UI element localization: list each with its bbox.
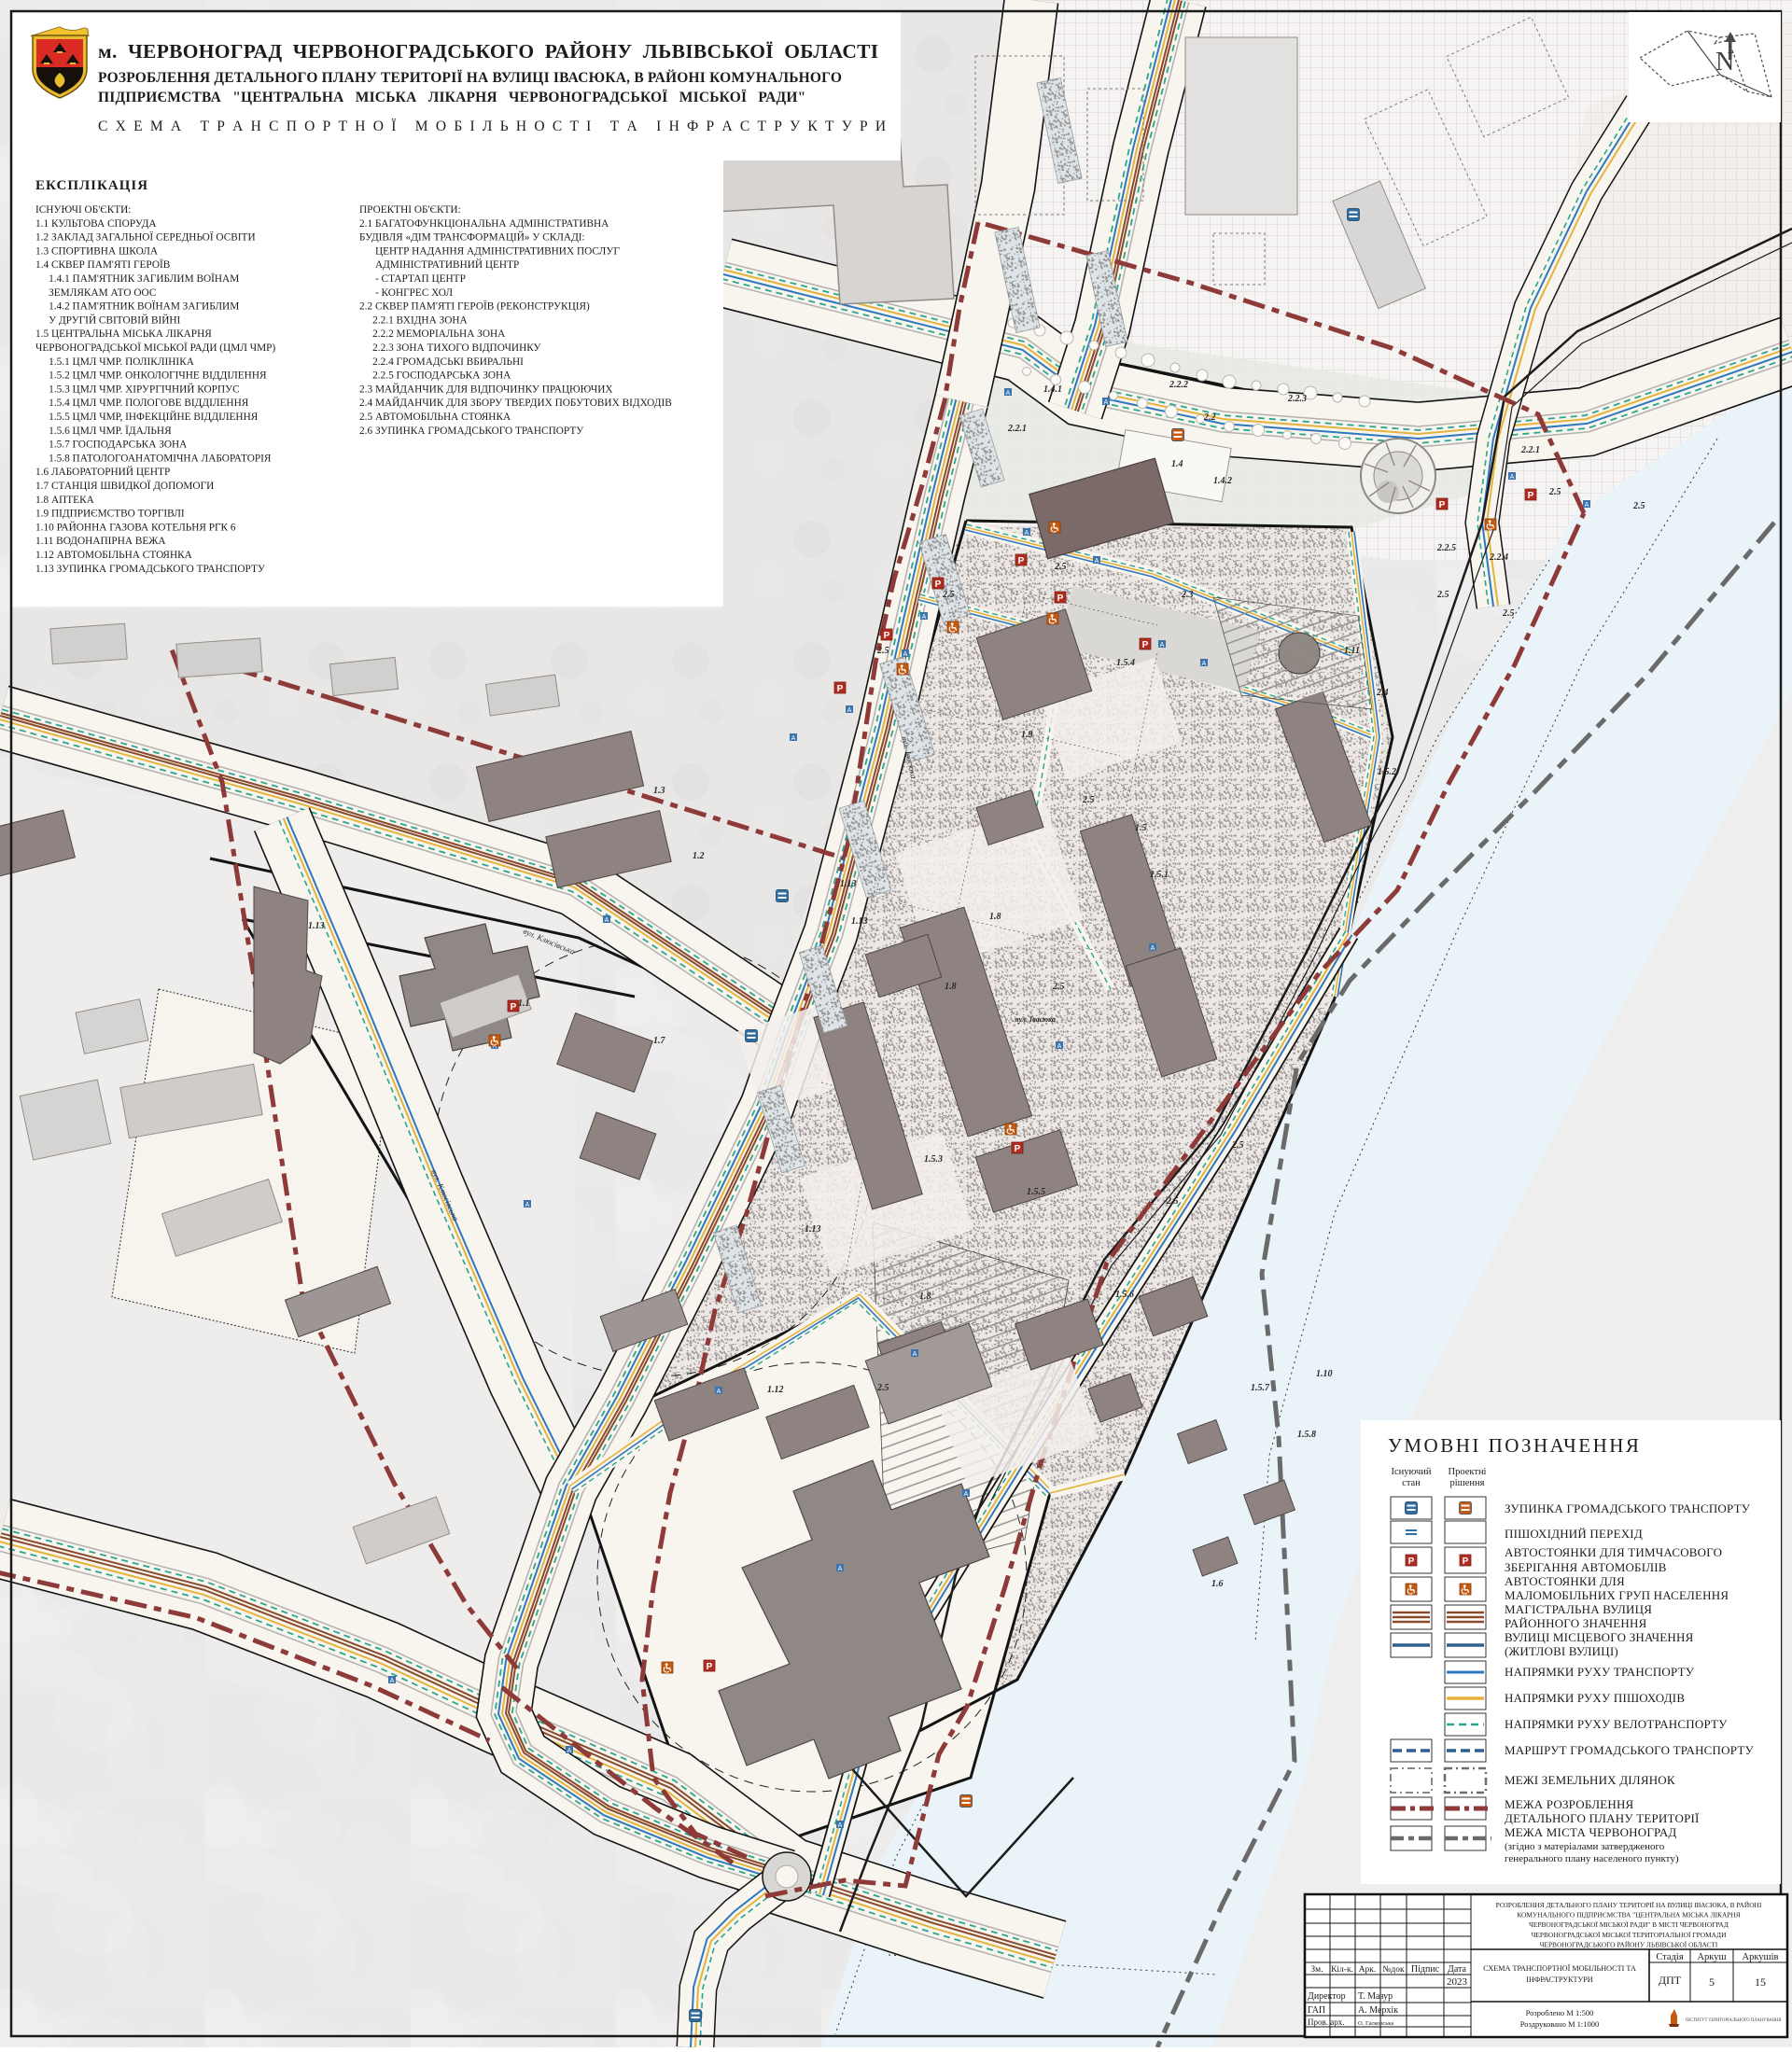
svg-text:P: P: [1528, 491, 1534, 501]
svg-text:P: P: [1408, 1556, 1415, 1567]
svg-text:2.2.4: 2.2.4: [1489, 552, 1508, 563]
svg-text:РОЗРОБЛЕННЯ ДЕТАЛЬНОГО ПЛАНУ Т: РОЗРОБЛЕННЯ ДЕТАЛЬНОГО ПЛАНУ ТЕРИТОРІЇ Н…: [98, 70, 842, 86]
svg-text:МАРШРУТ ГРОМАДСЬКОГО ТРАНСПОРТ: МАРШРУТ ГРОМАДСЬКОГО ТРАНСПОРТУ: [1505, 1743, 1754, 1757]
svg-text:P: P: [1463, 1556, 1469, 1567]
svg-text:1.5.7: 1.5.7: [1251, 1383, 1270, 1393]
svg-text:15: 15: [1755, 1975, 1766, 1989]
svg-text:P: P: [707, 1662, 713, 1672]
svg-text:1.13: 1.13: [840, 879, 857, 889]
svg-text:НАПРЯМКИ РУХУ ТРАНСПОРТУ: НАПРЯМКИ РУХУ ТРАНСПОРТУ: [1505, 1665, 1695, 1679]
svg-text:2.2.5: 2.2.5: [1436, 543, 1456, 553]
svg-text:1.10 РАЙОННА ГАЗОВА КОТЕЛЬНЯ Р: 1.10 РАЙОННА ГАЗОВА КОТЕЛЬНЯ РГК 6: [35, 522, 236, 533]
svg-text:ЦЕНТР НАДАННЯ АДМІНІСТРАТИВНИХ: ЦЕНТР НАДАННЯ АДМІНІСТРАТИВНИХ ПОСЛУГ: [359, 245, 620, 257]
svg-text:A: A: [791, 735, 796, 742]
svg-text:2.5: 2.5: [942, 590, 955, 600]
svg-text:1.5: 1.5: [1135, 823, 1147, 833]
svg-text:Підпис: Підпис: [1411, 1964, 1440, 1975]
svg-text:- КОНГРЕС ХОЛ: - КОНГРЕС ХОЛ: [359, 287, 453, 299]
svg-text:БУДІВЛЯ «ДІМ ТРАНСФОРМАЦІЙ» У: БУДІВЛЯ «ДІМ ТРАНСФОРМАЦІЙ» У СКЛАДІ:: [359, 232, 585, 244]
svg-text:2.2.1 ВХІДНА ЗОНА: 2.2.1 ВХІДНА ЗОНА: [359, 314, 469, 326]
svg-text:1.3 СПОРТИВНА ШКОЛА: 1.3 СПОРТИВНА ШКОЛА: [35, 245, 159, 257]
svg-text:1.8: 1.8: [945, 982, 957, 992]
svg-text:1.11 ВОДОНАПІРНА ВЕЖА: 1.11 ВОДОНАПІРНА ВЕЖА: [35, 536, 166, 547]
svg-text:2.6 ЗУПИНКА ГРОМАДСЬКОГО ТРАНС: 2.6 ЗУПИНКА ГРОМАДСЬКОГО ТРАНСПОРТУ: [359, 426, 583, 437]
svg-text:P: P: [511, 1002, 517, 1012]
svg-text:1.5.6: 1.5.6: [1115, 1290, 1134, 1300]
svg-text:A: A: [390, 1678, 395, 1684]
svg-text:1.10: 1.10: [1316, 1369, 1333, 1379]
svg-text:5: 5: [1709, 1975, 1715, 1989]
svg-text:НАПРЯМКИ РУХУ ВЕЛОТРАНСПОРТУ: НАПРЯМКИ РУХУ ВЕЛОТРАНСПОРТУ: [1505, 1717, 1728, 1731]
svg-text:1.5.8: 1.5.8: [1297, 1430, 1316, 1440]
svg-text:МЕЖА РОЗРОБЛЕННЯ: МЕЖА РОЗРОБЛЕННЯ: [1505, 1797, 1634, 1811]
svg-text:1.8 АПТЕКА: 1.8 АПТЕКА: [35, 495, 95, 506]
svg-text:ГАП: ГАП: [1308, 2005, 1325, 2016]
svg-text:МЕЖА МІСТА ЧЕРВОНОГРАД: МЕЖА МІСТА ЧЕРВОНОГРАД: [1505, 1825, 1676, 1839]
svg-text:УМОВНІ ПОЗНАЧЕННЯ: УМОВНІ ПОЗНАЧЕННЯ: [1388, 1434, 1641, 1457]
svg-text:1.5.3 ЦМЛ ЧМР. ХІРУРГІЧНИЙ КОР: 1.5.3 ЦМЛ ЧМР. ХІРУРГІЧНИЙ КОРПУС: [35, 384, 240, 395]
svg-text:2.2.1: 2.2.1: [1007, 424, 1027, 434]
svg-text:м. ЧЕРВОНОГРАД ЧЕРВОНОГРАДСЬ: м. ЧЕРВОНОГРАД ЧЕРВОНОГРАДСЬКОГО РАЙОНУ …: [98, 40, 878, 63]
svg-text:A: A: [1585, 502, 1589, 509]
svg-text:2.5: 2.5: [1082, 795, 1095, 805]
svg-text:1.7 СТАНЦІЯ ШВИДКОЇ ДОПОМОГИ: 1.7 СТАНЦІЯ ШВИДКОЇ ДОПОМОГИ: [35, 481, 214, 492]
svg-text:СХЕМА ТРАНСПОРТНОЇ МОБІЛЬНОСТІ: СХЕМА ТРАНСПОРТНОЇ МОБІЛЬНОСТІ ТА: [1483, 1964, 1636, 1973]
svg-text:Роздруковано М 1:1000: Роздруковано М 1:1000: [1520, 2019, 1600, 2029]
svg-text:1.6 ЛАБОРАТОРНИЙ ЦЕНТР: 1.6 ЛАБОРАТОРНИЙ ЦЕНТР: [35, 467, 170, 478]
svg-text:2.2.3 ЗОНА ТИХОГО ВІДПОЧИНКУ: 2.2.3 ЗОНА ТИХОГО ВІДПОЧИНКУ: [359, 342, 541, 354]
svg-text:1.5.5 ЦМЛ ЧМР, ІНФЕКЦІЙНЕ ВІДД: 1.5.5 ЦМЛ ЧМР, ІНФЕКЦІЙНЕ ВІДДІЛЕННЯ: [35, 412, 259, 423]
svg-text:A: A: [838, 1822, 843, 1829]
svg-text:Т. Мазур: Т. Мазур: [1358, 1991, 1393, 2002]
svg-text:ЧЕРВОНОГРАДСЬКОЇ МІСЬКОЇ РАДИ": ЧЕРВОНОГРАДСЬКОЇ МІСЬКОЇ РАДИ" В МІСТІ Ч…: [1529, 1920, 1729, 1929]
svg-text:КОМУНАЛЬНОГО ПІДПРИЄМСТВА "ЦЕН: КОМУНАЛЬНОГО ПІДПРИЄМСТВА "ЦЕНТРАЛЬНА МІ…: [1517, 1911, 1740, 1919]
svg-text:1.5.4: 1.5.4: [1116, 658, 1135, 668]
svg-text:- СТАРТАП ЦЕНТР: - СТАРТАП ЦЕНТР: [359, 273, 466, 285]
svg-text:2.2: 2.2: [1203, 412, 1216, 423]
svg-text:N: N: [1715, 48, 1734, 77]
svg-text:1.13: 1.13: [851, 916, 868, 927]
svg-text:ЗУПИНКА ГРОМАДСЬКОГО ТРАНСПОРТ: ЗУПИНКА ГРОМАДСЬКОГО ТРАНСПОРТУ: [1505, 1501, 1751, 1515]
svg-text:ПІДПРИЄМСТВА "ЦЕНТРАЛЬНА М: ПІДПРИЄМСТВА "ЦЕНТРАЛЬНА МІСЬКА ЛІКАРНЯ …: [98, 90, 805, 105]
svg-text:P: P: [935, 579, 942, 590]
svg-text:С Х Е М А Т Р А Н С П О Р Т: С Х Е М А Т Р А Н С П О Р Т Н О Ї М О Б …: [98, 119, 888, 134]
svg-text:1.4.2: 1.4.2: [1213, 476, 1232, 486]
svg-text:2.2.2 МЕМОРІАЛЬНА ЗОНА: 2.2.2 МЕМОРІАЛЬНА ЗОНА: [359, 328, 506, 340]
svg-text:1.1: 1.1: [518, 998, 530, 1009]
svg-text:(згідно з матеріалами затвердж: (згідно з матеріалами затвердженого: [1505, 1841, 1665, 1852]
svg-text:P: P: [1015, 1144, 1021, 1154]
svg-text:1.13: 1.13: [805, 1224, 821, 1235]
svg-text:A: A: [1510, 474, 1515, 481]
svg-text:A: A: [1104, 399, 1109, 406]
svg-text:Пров. арх.: Пров. арх.: [1308, 2017, 1345, 2027]
svg-text:МЕЖІ ЗЕМЕЛЬНИХ ДІЛЯНОК: МЕЖІ ЗЕМЕЛЬНИХ ДІЛЯНОК: [1505, 1773, 1675, 1787]
svg-text:A: A: [922, 614, 927, 621]
svg-text:1.12 АВТОМОБІЛЬНА СТОЯНКА: 1.12 АВТОМОБІЛЬНА СТОЯНКА: [35, 550, 193, 561]
svg-text:1.6: 1.6: [1211, 1579, 1224, 1589]
svg-text:ЧЕРВОНОГРАДСЬКОГО РАЙОНУ ЛЬВІВ: ЧЕРВОНОГРАДСЬКОГО РАЙОНУ ЛЬВІВСЬКОЇ ОБЛА…: [1540, 1940, 1718, 1948]
svg-text:1.7: 1.7: [653, 1036, 666, 1046]
svg-text:2.3 МАЙДАНЧИК ДЛЯ ВІДПОЧИНКУ П: 2.3 МАЙДАНЧИК ДЛЯ ВІДПОЧИНКУ ПРАЦЮЮЧИХ: [359, 384, 613, 395]
svg-text:A: A: [1057, 1043, 1062, 1050]
svg-text:1.11: 1.11: [1344, 646, 1360, 656]
svg-text:2.4: 2.4: [1376, 688, 1389, 698]
svg-text:1.4.1: 1.4.1: [1043, 384, 1062, 395]
svg-text:ПРОЕКТНІ ОБ'ЄКТИ:: ПРОЕКТНІ ОБ'ЄКТИ:: [359, 204, 461, 216]
svg-text:1.1 КУЛЬТОВА СПОРУДА: 1.1 КУЛЬТОВА СПОРУДА: [35, 218, 157, 230]
svg-text:№док: №док: [1382, 1965, 1405, 1975]
svg-text:1.4 СКВЕР ПАМ'ЯТІ ГЕРОЇВ: 1.4 СКВЕР ПАМ'ЯТІ ГЕРОЇВ: [35, 259, 170, 271]
svg-text:A: A: [964, 1491, 969, 1498]
svg-text:1.5.3: 1.5.3: [924, 1154, 943, 1165]
svg-text:1.3: 1.3: [653, 786, 665, 796]
svg-text:ЗЕМЛЯКАМ АТО ООС: ЗЕМЛЯКАМ АТО ООС: [35, 287, 156, 299]
svg-text:2.5: 2.5: [1632, 501, 1645, 511]
svg-text:A: A: [1151, 945, 1155, 952]
svg-text:У ДРУГІЙ СВІТОВІЙ ВІЙНІ: У ДРУГІЙ СВІТОВІЙ ВІЙНІ: [35, 314, 181, 326]
svg-text:2.2.3: 2.2.3: [1287, 394, 1307, 404]
svg-text:ІСНУЮЧІ ОБ'ЄКТИ:: ІСНУЮЧІ ОБ'ЄКТИ:: [35, 204, 131, 216]
svg-text:рішення: рішення: [1450, 1478, 1485, 1488]
svg-text:A: A: [567, 1748, 572, 1754]
svg-text:ВУЛИЦІ МІСЦЕВОГО ЗНАЧЕННЯ: ВУЛИЦІ МІСЦЕВОГО ЗНАЧЕННЯ: [1505, 1630, 1694, 1644]
svg-text:ЗБЕРІГАННЯ АВТОМОБІЛІВ: ЗБЕРІГАННЯ АВТОМОБІЛІВ: [1505, 1560, 1667, 1574]
svg-text:2.5: 2.5: [1548, 487, 1561, 497]
svg-text:1.5.7 ГОСПОДАРСЬКА ЗОНА: 1.5.7 ГОСПОДАРСЬКА ЗОНА: [35, 440, 188, 451]
svg-text:2.1 БАГАТОФУНКЦІОНАЛЬНА АДМІНІ: 2.1 БАГАТОФУНКЦІОНАЛЬНА АДМІНІСТРАТИВНА: [359, 218, 609, 230]
svg-text:2.5: 2.5: [1054, 562, 1067, 572]
svg-text:1.8: 1.8: [989, 912, 1001, 922]
svg-text:2.2.5 ГОСПОДАРСЬКА ЗОНА: 2.2.5 ГОСПОДАРСЬКА ЗОНА: [359, 370, 511, 382]
svg-text:2.5: 2.5: [876, 646, 889, 656]
svg-text:1.5.1: 1.5.1: [1150, 870, 1169, 880]
svg-text:Проектні: Проектні: [1449, 1467, 1487, 1477]
svg-text:1.4.1 ПАМ'ЯТНИК ЗАГИБЛИМ ВОЇНА: 1.4.1 ПАМ'ЯТНИК ЗАГИБЛИМ ВОЇНАМ: [35, 273, 239, 285]
svg-text:Розроблено М 1:500: Розроблено М 1:500: [1526, 2008, 1594, 2017]
svg-text:1.5.5: 1.5.5: [1027, 1187, 1045, 1197]
svg-text:2.5: 2.5: [1231, 1140, 1244, 1151]
svg-text:Існуючий: Існуючий: [1392, 1467, 1432, 1477]
svg-text:A: A: [1025, 530, 1029, 537]
svg-text:1.12: 1.12: [767, 1385, 784, 1395]
svg-text:A: A: [1202, 661, 1207, 667]
svg-text:ДПТ: ДПТ: [1659, 1974, 1682, 1987]
svg-text:Стадія: Стадія: [1656, 1952, 1684, 1962]
svg-text:1.4: 1.4: [1171, 459, 1183, 469]
svg-text:стан: стан: [1402, 1478, 1421, 1488]
svg-text:2.2.4 ГРОМАДСЬКІ ВБИРАЛЬНІ: 2.2.4 ГРОМАДСЬКІ ВБИРАЛЬНІ: [359, 356, 524, 368]
svg-text:(ЖИТЛОВІ ВУЛИЦІ): (ЖИТЛОВІ ВУЛИЦІ): [1505, 1644, 1618, 1658]
svg-text:A: A: [1006, 390, 1011, 397]
svg-text:1.5.6 ЦМЛ ЧМР. ЇДАЛЬНЯ: 1.5.6 ЦМЛ ЧМР. ЇДАЛЬНЯ: [35, 426, 172, 437]
svg-text:2.5: 2.5: [1502, 608, 1515, 619]
svg-text:2.5: 2.5: [1166, 1196, 1179, 1207]
svg-text:1.5.8 ПАТОЛОГОАНАТОМІЧНА ЛАБОР: 1.5.8 ПАТОЛОГОАНАТОМІЧНА ЛАБОРАТОРІЯ: [35, 453, 272, 464]
svg-text:2.5: 2.5: [876, 1383, 889, 1393]
svg-text:АВТОСТОЯНКИ ДЛЯ ТИМЧАСОВОГО: АВТОСТОЯНКИ ДЛЯ ТИМЧАСОВОГО: [1505, 1545, 1722, 1559]
svg-text:Кіл-к.: Кіл-к.: [1331, 1965, 1353, 1975]
svg-text:A: A: [525, 1202, 530, 1208]
svg-text:A: A: [717, 1389, 721, 1395]
svg-text:ІНСТИТУТ ТЕРИТОРІАЛЬНОГО ПЛАНУ: ІНСТИТУТ ТЕРИТОРІАЛЬНОГО ПЛАНУВАННЯ: [1686, 2018, 1782, 2023]
svg-text:А. Мерхік: А. Мерхік: [1358, 2005, 1398, 2016]
svg-text:2.4 МАЙДАНЧИК ДЛЯ ЗБОРУ ТВЕРДИ: 2.4 МАЙДАНЧИК ДЛЯ ЗБОРУ ТВЕРДИХ ПОБУТОВИ…: [359, 398, 672, 409]
svg-text:Дата: Дата: [1448, 1964, 1466, 1975]
svg-text:ЕКСПЛІКАЦІЯ: ЕКСПЛІКАЦІЯ: [35, 178, 148, 193]
svg-text:1.9 ПІДПРИЄМСТВО ТОРГІВЛІ: 1.9 ПІДПРИЄМСТВО ТОРГІВЛІ: [35, 509, 185, 520]
svg-text:P: P: [1439, 500, 1446, 510]
svg-text:АДМІНІСТРАТИВНИЙ ЦЕНТР: АДМІНІСТРАТИВНИЙ ЦЕНТР: [359, 259, 519, 271]
svg-text:1.5.1 ЦМЛ ЧМР. ПОЛІКЛІНІКА: 1.5.1 ЦМЛ ЧМР. ПОЛІКЛІНІКА: [35, 356, 195, 368]
svg-text:2.3: 2.3: [1181, 590, 1194, 600]
svg-text:1.2 ЗАКЛАД ЗАГАЛЬНОЇ СЕРЕДНЬОЇ: 1.2 ЗАКЛАД ЗАГАЛЬНОЇ СЕРЕДНЬОЇ ОСВІТИ: [35, 232, 256, 244]
svg-text:1.5 ЦЕНТРАЛЬНА МІСЬКА ЛІКАРНЯ: 1.5 ЦЕНТРАЛЬНА МІСЬКА ЛІКАРНЯ: [35, 328, 212, 340]
svg-text:A: A: [903, 651, 908, 658]
svg-text:P: P: [884, 631, 890, 641]
svg-text:2.5: 2.5: [1052, 982, 1065, 992]
svg-text:A: A: [838, 1566, 843, 1572]
svg-text:2.2 СКВЕР ПАМ'ЯТІ ГЕРОЇВ (РЕКО: 2.2 СКВЕР ПАМ'ЯТІ ГЕРОЇВ (РЕКОНСТРУКЦІЯ): [359, 301, 590, 313]
svg-text:1.13 ЗУПИНКА ГРОМАДСЬКОГО ТРАН: 1.13 ЗУПИНКА ГРОМАДСЬКОГО ТРАНСПОРТУ: [35, 564, 265, 575]
svg-text:МАГІСТРАЛЬНА ВУЛИЦЯ: МАГІСТРАЛЬНА ВУЛИЦЯ: [1505, 1602, 1652, 1616]
svg-text:P: P: [1057, 593, 1064, 604]
svg-text:A: A: [1160, 642, 1165, 649]
svg-text:генерального плану населеного: генерального плану населеного пункту): [1505, 1853, 1679, 1864]
svg-text:РОЗРОБЛЕННЯ ДЕТАЛЬНОГО ПЛАНУ Т: РОЗРОБЛЕННЯ ДЕТАЛЬНОГО ПЛАНУ ТЕРИТОРІЇ Н…: [1496, 1901, 1762, 1909]
svg-text:ЧЕРВОНОГРАДСЬКОЇ МІСЬКОЇ ТЕРИТ: ЧЕРВОНОГРАДСЬКОЇ МІСЬКОЇ ТЕРИТОРІАЛЬНОЇ …: [1532, 1931, 1727, 1939]
svg-text:2.5: 2.5: [1436, 590, 1449, 600]
svg-text:вул. Івасюка: вул. Івасюка: [1015, 1015, 1056, 1024]
svg-text:1.5.4 ЦМЛ ЧМР. ПОЛОГОВЕ ВІДДІЛ: 1.5.4 ЦМЛ ЧМР. ПОЛОГОВЕ ВІДДІЛЕННЯ: [35, 398, 249, 409]
svg-text:P: P: [837, 684, 844, 694]
svg-text:1.2: 1.2: [693, 851, 705, 861]
svg-text:Аркуш: Аркуш: [1697, 1952, 1726, 1962]
svg-text:1.4.2 ПАМ'ЯТНИК ВОЇНАМ ЗАГИБЛИ: 1.4.2 ПАМ'ЯТНИК ВОЇНАМ ЗАГИБЛИМ: [35, 301, 239, 313]
svg-text:P: P: [1142, 640, 1149, 650]
svg-text:ПІШОХІДНИЙ ПЕРЕХІД: ПІШОХІДНИЙ ПЕРЕХІД: [1505, 1527, 1643, 1541]
svg-text:1.5.2 ЦМЛ ЧМР. ОНКОЛОГІЧНЕ ВІД: 1.5.2 ЦМЛ ЧМР. ОНКОЛОГІЧНЕ ВІДДІЛЕННЯ: [35, 370, 267, 382]
svg-text:АВТОСТОЯНКИ ДЛЯ: АВТОСТОЯНКИ ДЛЯ: [1505, 1574, 1625, 1588]
svg-text:P: P: [1018, 556, 1025, 566]
svg-text:2.5 АВТОМОБІЛЬНА СТОЯНКА: 2.5 АВТОМОБІЛЬНА СТОЯНКА: [359, 412, 511, 423]
svg-text:РАЙОННОГО ЗНАЧЕННЯ: РАЙОННОГО ЗНАЧЕННЯ: [1505, 1616, 1647, 1630]
svg-text:МАЛОМОБІЛЬНИХ ГРУП НАСЕЛЕННЯ: МАЛОМОБІЛЬНИХ ГРУП НАСЕЛЕННЯ: [1505, 1588, 1729, 1602]
svg-text:Зм.: Зм.: [1310, 1965, 1323, 1975]
svg-text:A: A: [1095, 558, 1099, 565]
svg-text:Аркушів: Аркушів: [1743, 1952, 1779, 1962]
svg-text:2.2.1: 2.2.1: [1520, 445, 1540, 455]
svg-text:A: A: [605, 917, 609, 924]
svg-text:1.9: 1.9: [1021, 730, 1033, 740]
svg-text:Директор: Директор: [1308, 1991, 1346, 2002]
svg-text:Арк.: Арк.: [1359, 1965, 1377, 1975]
svg-text:1.5.2: 1.5.2: [1378, 767, 1396, 777]
svg-text:НАПРЯМКИ РУХУ ПІШОХОДІВ: НАПРЯМКИ РУХУ ПІШОХОДІВ: [1505, 1691, 1685, 1705]
svg-text:ЧЕРВОНОГРАДСЬКОЇ МІСЬКОЇ РАДИ: ЧЕРВОНОГРАДСЬКОЇ МІСЬКОЇ РАДИ (ЦМЛ ЧМР): [35, 342, 275, 354]
svg-text:1.13: 1.13: [308, 921, 325, 931]
svg-text:1.8: 1.8: [919, 1291, 931, 1302]
svg-text:ДЕТАЛЬНОГО ПЛАНУ ТЕРИТОРІЇ: ДЕТАЛЬНОГО ПЛАНУ ТЕРИТОРІЇ: [1505, 1811, 1700, 1825]
svg-text:О. Гасковська: О. Гасковська: [1358, 2020, 1393, 2027]
svg-text:ІНФРАСТРУКТУРИ: ІНФРАСТРУКТУРИ: [1526, 1975, 1593, 1984]
svg-text:A: A: [913, 1351, 917, 1358]
svg-text:2.2.2: 2.2.2: [1169, 380, 1188, 390]
svg-text:A: A: [847, 707, 852, 714]
svg-text:2023: 2023: [1447, 1976, 1468, 1988]
